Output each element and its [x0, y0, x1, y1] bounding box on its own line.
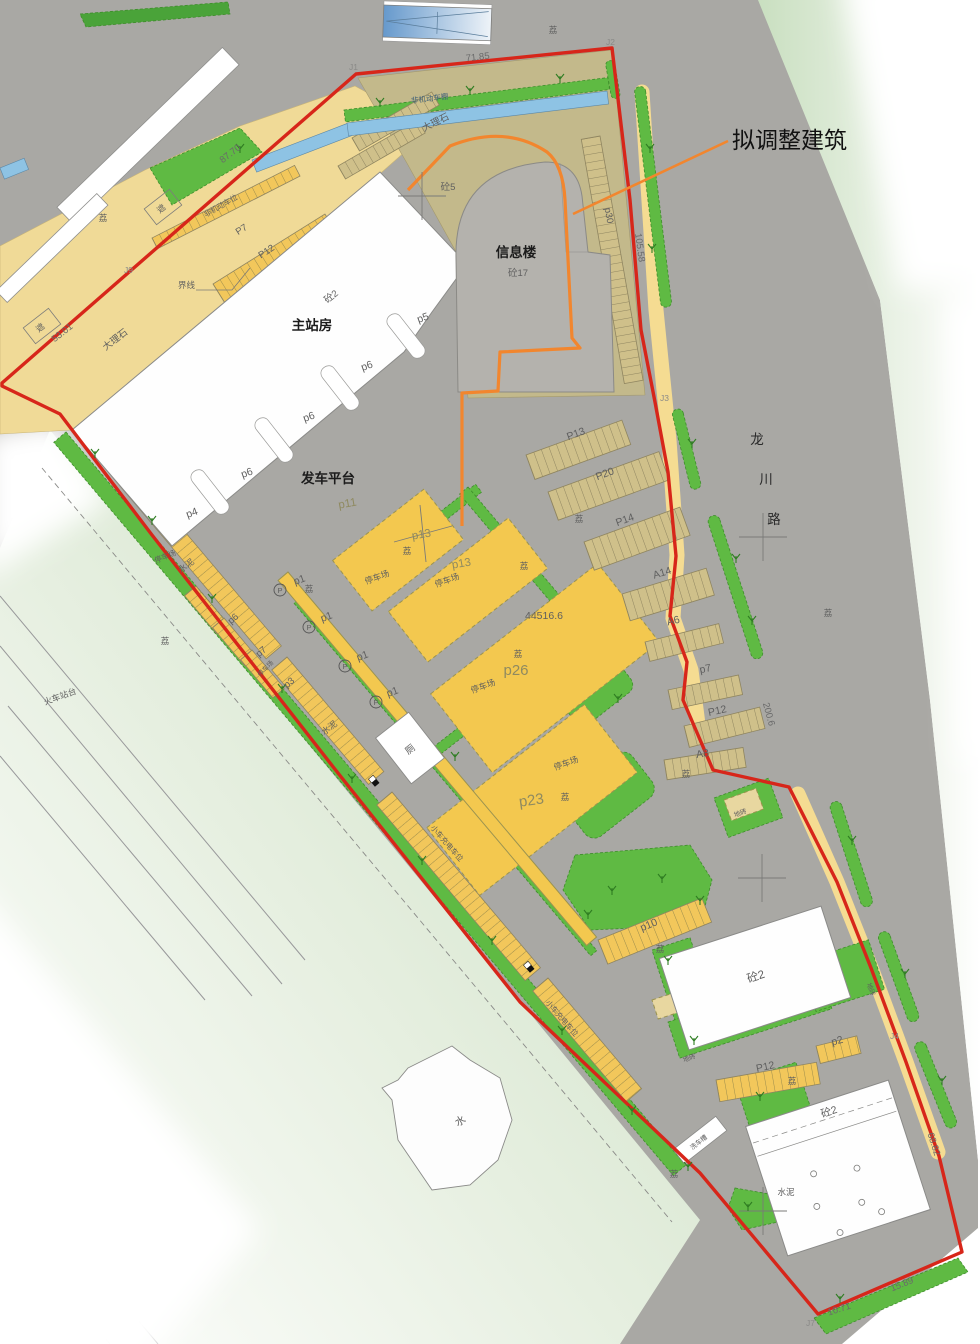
longchuan-road-char2: 川	[759, 472, 773, 487]
site-plan-drawing: P P P P 拟调整建筑 信息楼 砼17 砼5 主站房 砼2 发车平台 大理石…	[0, 0, 980, 1344]
boundary-line-label: 界线	[178, 280, 196, 290]
info-building-code: 砼17	[508, 267, 528, 279]
tree-mark-3: 荔	[403, 546, 412, 556]
p-icon-letter: P	[373, 698, 378, 707]
p-icon-letter: P	[277, 586, 282, 595]
tree-mark-13: 荔	[161, 636, 170, 646]
point-j9: J9	[124, 265, 133, 275]
info-building-label: 信息楼	[496, 244, 537, 260]
spot-p23: p23	[518, 790, 545, 810]
tree-mark-7: 荔	[561, 792, 570, 802]
tree-mark-9: 荔	[824, 608, 833, 618]
tree-mark-5: 荔	[575, 514, 584, 524]
callout-label: 拟调整建筑	[732, 128, 847, 153]
spot-a8: A8	[695, 747, 710, 761]
tree-mark-12: 荔	[670, 1169, 679, 1179]
longchuan-road-char3: 路	[767, 512, 781, 527]
concrete5-label: 砼5	[441, 181, 456, 193]
footbridge	[383, 1, 492, 45]
tree-mark-11: 荔	[788, 1076, 797, 1086]
tree-mark-2: 荔	[549, 25, 558, 35]
tree-mark-4: 荔	[520, 561, 529, 571]
site-plan-page: P P P P 拟调整建筑 信息楼 砼17 砼5 主站房 砼2 发车平台 大理石…	[0, 0, 980, 1344]
longchuan-road-char1: 龙	[750, 432, 764, 447]
tree-mark-6: 荔	[514, 649, 523, 659]
tree-mark-8: 荔	[682, 769, 691, 779]
tree-mark-1: 荔	[99, 213, 108, 223]
point-j7: J7	[806, 1318, 815, 1328]
departure-platform-label: 发车平台	[300, 470, 355, 486]
tree-mark-10: 荔	[656, 944, 665, 954]
spot-p26: p26	[503, 662, 528, 679]
area-number-label: 44516.6	[525, 610, 563, 622]
cement-label-3: 水泥	[777, 1187, 795, 1197]
main-station-label: 主站房	[292, 317, 333, 333]
point-j4: J4	[890, 1031, 899, 1041]
point-j1: J1	[349, 62, 358, 72]
p-icon-letter: P	[306, 623, 311, 632]
tree-mark-14: 荔	[305, 584, 314, 594]
p-icon-letter: P	[342, 662, 347, 671]
point-j2: J2	[606, 37, 615, 47]
point-j3: J3	[660, 393, 669, 403]
